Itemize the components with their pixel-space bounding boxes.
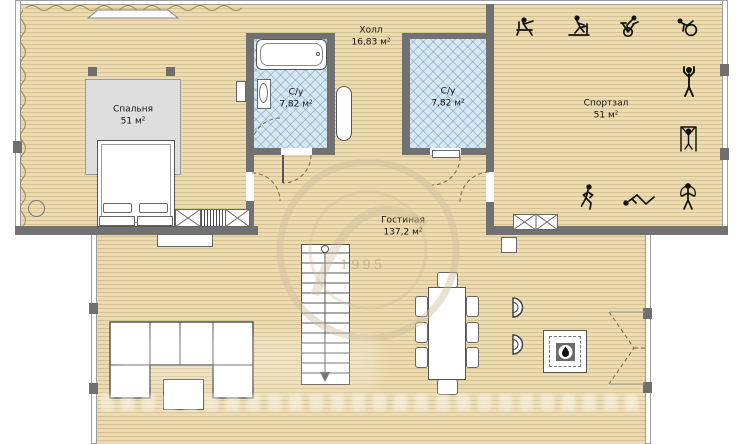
room-name: Спортзал bbox=[584, 98, 629, 110]
room-area: 51 м² bbox=[584, 110, 629, 122]
wall-bathroom2-left bbox=[402, 33, 410, 155]
wall-niche bbox=[236, 81, 246, 102]
coffee-table bbox=[163, 379, 204, 410]
dining-chair bbox=[437, 379, 458, 395]
column bbox=[166, 67, 175, 76]
room-label-living: Гостиная 137,2 м² bbox=[381, 215, 425, 238]
hall-radiator bbox=[336, 86, 352, 141]
room-area: 7,82 м² bbox=[431, 98, 464, 110]
wall-bathroom1-right bbox=[327, 33, 335, 155]
bed-pillow bbox=[139, 203, 168, 213]
bathtub-drain bbox=[316, 52, 320, 56]
column bbox=[88, 67, 97, 76]
room-name: С/у bbox=[279, 87, 312, 99]
wall-bathroom2-top bbox=[402, 33, 494, 39]
dining-chair bbox=[466, 296, 479, 317]
bathtub-basin bbox=[260, 43, 323, 66]
radiator bbox=[200, 209, 226, 227]
room-label-hall: Холл 16,83 м² bbox=[351, 25, 390, 48]
wall-post bbox=[643, 382, 652, 393]
room-label-bedroom: Спальня 51 м² bbox=[113, 104, 153, 127]
outer-wall-left-upper bbox=[15, 0, 21, 233]
wall-bedroom-bottom bbox=[15, 226, 258, 235]
room-name: Гостиная bbox=[381, 215, 425, 227]
outer-wall-right-gym bbox=[722, 0, 728, 233]
floor-plan: Спальня 51 м² Холл 16,83 м² С/у 7,82 м² … bbox=[0, 0, 740, 444]
door-opening-bathroom1 bbox=[281, 148, 312, 155]
fireplace-firebox bbox=[556, 343, 575, 361]
door-leaf bbox=[432, 150, 460, 158]
room-area: 51 м² bbox=[113, 116, 153, 128]
room-label-bathroom2: С/у 7,82 м² bbox=[431, 86, 464, 109]
room-label-bathroom1: С/у 7,82 м² bbox=[279, 87, 312, 110]
room-name: Холл bbox=[351, 25, 390, 37]
wall-post bbox=[720, 148, 729, 160]
dining-chair bbox=[466, 347, 479, 368]
wall-post bbox=[720, 64, 729, 76]
room-area: 7,82 м² bbox=[279, 99, 312, 111]
room-label-gym: Спортзал 51 м² bbox=[584, 98, 629, 121]
bed-footboard bbox=[137, 216, 173, 226]
gym-cabinet bbox=[513, 214, 558, 230]
sink-basin bbox=[259, 83, 268, 103]
dining-chair bbox=[437, 272, 458, 288]
stool bbox=[28, 200, 45, 217]
bed-pillow bbox=[103, 203, 132, 213]
column-box bbox=[501, 237, 517, 253]
wall-post bbox=[13, 141, 22, 153]
room-name: Спальня bbox=[113, 104, 153, 116]
dining-chair bbox=[415, 347, 428, 368]
room-area: 137,2 м² bbox=[381, 227, 425, 239]
wall-post bbox=[89, 383, 98, 394]
dining-table bbox=[428, 287, 466, 380]
dining-chair bbox=[415, 296, 428, 317]
wardrobe-section bbox=[175, 209, 201, 227]
dining-chair bbox=[415, 322, 428, 343]
outer-wall-top bbox=[16, 0, 728, 5]
wall-post bbox=[643, 308, 652, 319]
room-area: 16,83 м² bbox=[351, 37, 390, 49]
door-opening-bedroom bbox=[246, 172, 254, 201]
dining-chair bbox=[466, 322, 479, 343]
wall-post bbox=[89, 303, 98, 314]
window-wall-living-right bbox=[645, 228, 651, 444]
door-opening-gym bbox=[486, 172, 494, 202]
window-wall-living-left bbox=[91, 228, 97, 444]
room-name: С/у bbox=[431, 86, 464, 98]
bed-footboard bbox=[99, 216, 135, 226]
stairs bbox=[301, 244, 350, 385]
window-radiator bbox=[157, 234, 213, 247]
wardrobe-section bbox=[225, 209, 250, 227]
